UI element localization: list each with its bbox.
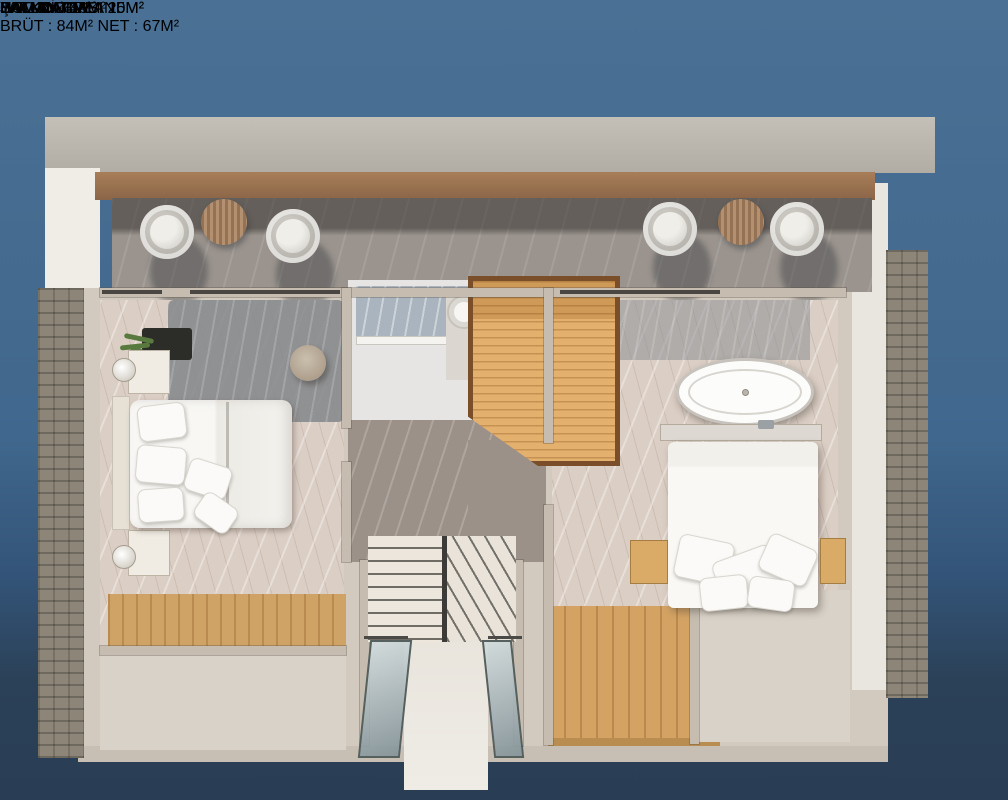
handrail [364, 636, 408, 639]
roof-slab [45, 117, 935, 173]
handrail [488, 636, 522, 639]
interior-wall [342, 288, 351, 428]
balcony-chair [770, 202, 824, 256]
floor-plan-scene: BALKON 16M² HAMAM 3M² HAMAM 4M² JAKUZİ H… [0, 0, 1008, 800]
plan-title: ÇATI KAT PLANI [0, 0, 179, 18]
side-table [820, 538, 846, 584]
pillow [137, 486, 185, 523]
stairs-straight-flight [368, 536, 446, 642]
tub-faucet [758, 420, 774, 429]
balcony-chair [643, 202, 697, 256]
window-frame [560, 290, 720, 294]
net-area: NET : 67M² [98, 18, 180, 35]
interior-wall [544, 505, 553, 745]
bed-headboard [112, 396, 130, 530]
pillow [134, 444, 187, 486]
window-frame [102, 290, 162, 294]
balcony-window-frame [95, 172, 875, 200]
balcony-chair [140, 205, 194, 259]
vanity-counter [660, 424, 822, 441]
exterior-wall-left-white [45, 168, 100, 305]
stone-wall-right [886, 250, 928, 698]
title-panel: ÇATI KAT PLANI BRÜT : 84M² NET : 67M² [0, 0, 179, 36]
pillow [698, 574, 749, 613]
stone-wall-left [38, 288, 84, 758]
stairs-landing [404, 642, 488, 790]
balcony-table [718, 199, 764, 245]
pouf [290, 345, 326, 381]
stairs-winder-flight [446, 536, 516, 642]
interior-wall [690, 588, 699, 744]
tub-drain [742, 389, 749, 396]
brut-area: BRÜT : 84M² [0, 18, 93, 35]
interior-wall [342, 462, 351, 562]
balcony-chair [266, 209, 320, 263]
window-frame [190, 290, 340, 294]
area-summary: BRÜT : 84M² NET : 67M² [0, 18, 179, 36]
balcony-right-floor [698, 590, 850, 742]
balcony-table [201, 199, 247, 245]
wood-bench-left [108, 594, 346, 646]
balcony-left-floor [100, 650, 346, 750]
side-table [630, 540, 668, 584]
table-lamp [112, 545, 136, 569]
stairs-newel [442, 536, 447, 644]
pillow [746, 575, 796, 613]
pillow [136, 401, 188, 443]
interior-wall [544, 288, 553, 443]
interior-wall [100, 646, 346, 655]
bedroom-right-rug [595, 300, 810, 360]
table-lamp [112, 358, 136, 382]
